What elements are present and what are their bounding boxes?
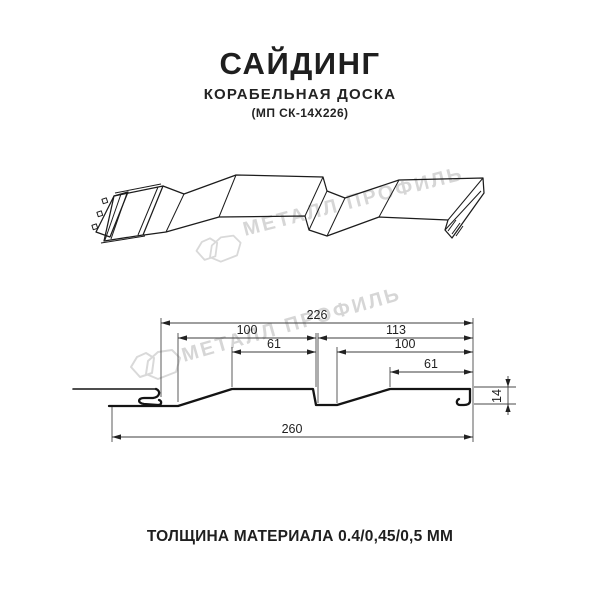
- dim-label: 61: [424, 357, 438, 371]
- dim-61-right: 61: [390, 357, 473, 375]
- dim-label: 100: [237, 323, 258, 337]
- watermark-text: МЕТАЛЛ ПРОФИЛЬ: [179, 283, 403, 367]
- dim-label: 100: [395, 337, 416, 351]
- material-thickness-note: ТОЛЩИНА МАТЕРИАЛА 0.4/0,45/0,5 ММ: [0, 528, 600, 546]
- section-profile: [109, 389, 470, 406]
- watermark-text: МЕТАЛЛ ПРОФИЛЬ: [241, 163, 466, 241]
- metal-profil-watermark-top: МЕТАЛЛ ПРОФИЛЬ: [197, 163, 467, 262]
- product-drawing-page: САЙДИНГ КОРАБЕЛЬНАЯ ДОСКА (МП СК-14Х226)…: [0, 0, 600, 600]
- dim-260: 260: [112, 422, 473, 440]
- metal-profil-watermark-bottom: МЕТАЛЛ ПРОФИЛЬ: [131, 283, 404, 379]
- dim-label: 226: [307, 308, 328, 322]
- dim-label: 260: [282, 422, 303, 436]
- metal-profil-logo-icon: [197, 236, 241, 262]
- dim-100-right: 100: [337, 337, 473, 355]
- dim-label: 113: [386, 323, 406, 337]
- dim-14: 14: [490, 376, 511, 415]
- dim-label: 61: [267, 337, 281, 351]
- extension-lines: [112, 318, 516, 442]
- dim-226: 226: [161, 308, 473, 326]
- dim-label: 14: [490, 389, 504, 403]
- lock-curl: [139, 389, 161, 405]
- starter-flange-plate: [96, 192, 128, 237]
- technical-drawing: МЕТАЛЛ ПРОФИЛЬ МЕТАЛЛ ПРОФИЛЬ: [0, 0, 600, 600]
- metal-profil-logo-icon: [131, 350, 180, 379]
